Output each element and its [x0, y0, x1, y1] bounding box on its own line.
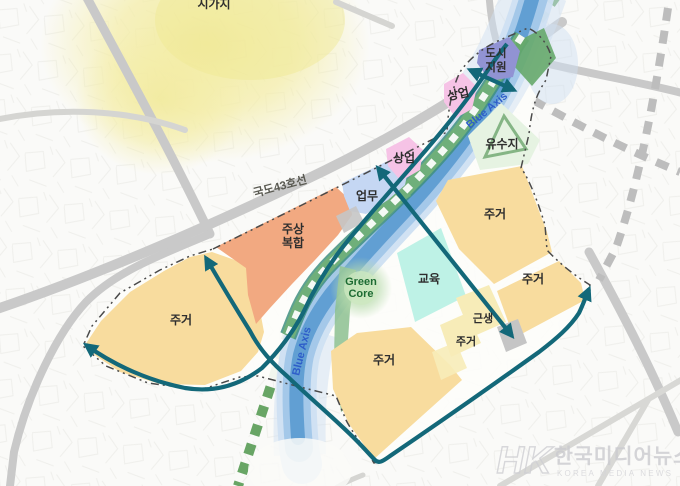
watermark-subtitle: KOREA MEDIA NEWS: [557, 469, 673, 478]
watermark-logo: HK: [497, 440, 554, 482]
education-label: 교육: [418, 271, 440, 286]
green-core-label-2: Core: [348, 288, 373, 300]
green-core-label-1: Green: [345, 276, 377, 288]
map-canvas: 시가지 국도43호선 주상 복합 업무 상업 상업 도시 지원 유수지 주거 주…: [0, 0, 680, 486]
residential-lower-east-label: 주거: [522, 271, 544, 286]
detention-label: 유수지: [485, 136, 518, 151]
residential-south-label: 주거: [373, 352, 395, 367]
residential-upper-east-label: 주거: [484, 206, 506, 221]
residential-west-label: 주거: [170, 312, 192, 327]
watermark-name: 한국미디어뉴스: [554, 444, 680, 468]
business-label: 업무: [356, 189, 378, 203]
urban-area-label: 시가지: [197, 0, 230, 11]
land-use-plan-map: 시가지 국도43호선 주상 복합 업무 상업 상업 도시 지원 유수지 주거 주…: [0, 0, 680, 486]
commercial-mid-label: 상업: [393, 150, 415, 165]
residential-small-label: 주거: [456, 334, 476, 348]
watermark: HK 한국미디어뉴스 KOREA MEDIA NEWS: [497, 440, 680, 482]
mixed-use-label-2: 복합: [282, 235, 304, 250]
urban-support-label-2: 지원: [485, 60, 506, 74]
mixed-use-label-1: 주상: [282, 221, 304, 236]
urban-support-label-1: 도시: [485, 47, 506, 60]
neighborhood-label: 근생: [473, 311, 493, 325]
